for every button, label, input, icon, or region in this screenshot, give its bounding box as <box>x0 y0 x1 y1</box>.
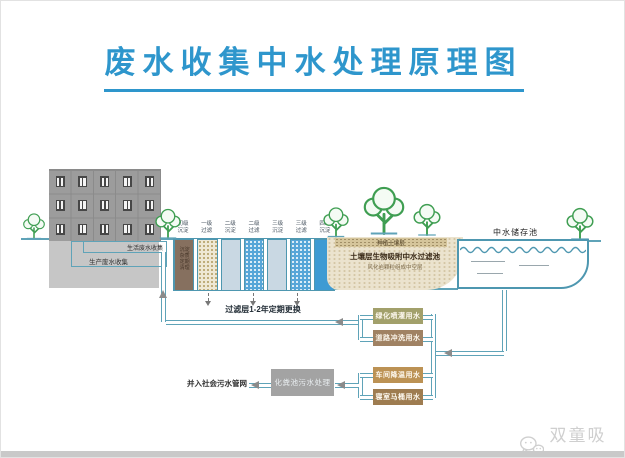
return-pipe-vertical <box>161 252 166 322</box>
treatment-tank-row: 沉淀杂质定期清理 <box>173 238 335 291</box>
reuse-stub <box>423 337 433 342</box>
filter-drain-arrow-icon <box>253 293 254 301</box>
flow-arrow-feed-icon <box>444 349 452 357</box>
window-icon <box>123 224 132 235</box>
soil-main-label: 土壤层生物吸附中水过滤池 <box>327 251 463 262</box>
window-icon <box>56 176 65 187</box>
page-title: 废水收集中水处理原理图 <box>1 37 625 82</box>
tree-icon <box>21 212 47 239</box>
window-icon <box>100 176 109 187</box>
window-icon <box>100 224 109 235</box>
window-icon <box>56 224 65 235</box>
sewer-network-label: 并入社会污水管网 <box>185 378 247 389</box>
tank-label-3: 二级沉淀 <box>220 221 240 234</box>
domestic-water-channel: 生活废水收集 <box>83 241 167 253</box>
tank-sediment-note: 沉淀杂质定期清理 <box>175 240 193 271</box>
filter-drain-arrow-icon <box>208 293 209 301</box>
reuse-stub <box>423 315 433 320</box>
window-icon <box>123 176 132 187</box>
water-wave-icon <box>460 245 586 255</box>
filter-replace-note: 过滤层1-2年定期更换 <box>193 304 333 315</box>
tank-label-5: 三级沉淀 <box>268 221 288 234</box>
reuse-box-workshop-cooling: 车间降温用水 <box>373 367 423 383</box>
flow-arrow-up-icon <box>159 290 167 298</box>
reuse-stub <box>360 337 373 342</box>
reuse-stub <box>423 395 433 400</box>
reuse-stub <box>360 395 373 400</box>
window-icon <box>123 200 132 211</box>
water-dash <box>471 261 505 262</box>
tank-labels-row: 初级沉淀 一级过滤 二级沉淀 二级过滤 三级沉淀 三级过滤 四级沉淀 <box>173 221 335 234</box>
planting-soil-band: 种植土壤层 <box>335 238 447 247</box>
reuse-stub <box>360 373 373 378</box>
tree-icon <box>564 205 596 241</box>
reuse-box-irrigation: 绿化喷灌用水 <box>373 308 423 324</box>
production-water-label: 生产废水收集 <box>89 256 128 266</box>
pool-outlet-pipe <box>502 290 507 351</box>
tank-label-2: 一级过滤 <box>197 221 217 234</box>
storage-pool-label: 中水储存池 <box>493 227 538 238</box>
flow-arrow-return-icon <box>335 318 343 326</box>
window-icon <box>78 224 87 235</box>
reuse-box-dorm-toilet: 寝室马桶用水 <box>373 389 423 405</box>
tank-sediment-2 <box>221 239 241 290</box>
planting-soil-label: 种植土壤层 <box>377 239 405 247</box>
flow-arrow-septic-icon <box>337 381 345 389</box>
flow-arrow-sewer-icon <box>251 381 259 389</box>
window-icon <box>78 176 87 187</box>
page-bottom-edge <box>1 451 625 458</box>
diagram-canvas: 废水收集中水处理原理图 生活废水收集 生产废水收集 初级沉淀 一级过滤 二级沉淀… <box>0 0 625 458</box>
filter-drain-arrow-icon <box>297 293 298 301</box>
water-dash <box>477 273 503 274</box>
soil-sub-label: 风化岩颗粒组成中空层 <box>327 263 463 271</box>
water-dash <box>519 265 549 266</box>
window-icon <box>56 200 65 211</box>
storage-pool <box>457 239 589 289</box>
tank-filter-3 <box>290 239 310 290</box>
domestic-water-label: 生活废水收集 <box>127 243 163 252</box>
reuse-stub <box>360 315 373 320</box>
reuse-right-bracket <box>431 314 436 398</box>
window-icon <box>145 176 154 187</box>
tank-primary-sediment: 沉淀杂质定期清理 <box>174 239 194 290</box>
tank-sediment-3 <box>267 239 287 290</box>
tree-icon <box>153 207 183 239</box>
factory-building <box>49 169 161 241</box>
return-pipe-horizontal <box>166 320 359 325</box>
tank-filter-1 <box>197 239 217 290</box>
reuse-stub <box>423 373 433 378</box>
tree-icon <box>321 205 351 238</box>
window-icon <box>100 200 109 211</box>
window-icon <box>78 200 87 211</box>
tank-filter-2 <box>244 239 264 290</box>
reuse-box-road-washing: 道路冲洗用水 <box>373 330 423 346</box>
tree-icon <box>360 181 408 238</box>
title-underline <box>104 89 524 92</box>
tree-icon <box>411 200 443 238</box>
tank-label-6: 三级过滤 <box>291 221 311 234</box>
tank-label-4: 二级过滤 <box>244 221 264 234</box>
septic-tank-box: 化粪池污水处理 <box>271 369 334 396</box>
